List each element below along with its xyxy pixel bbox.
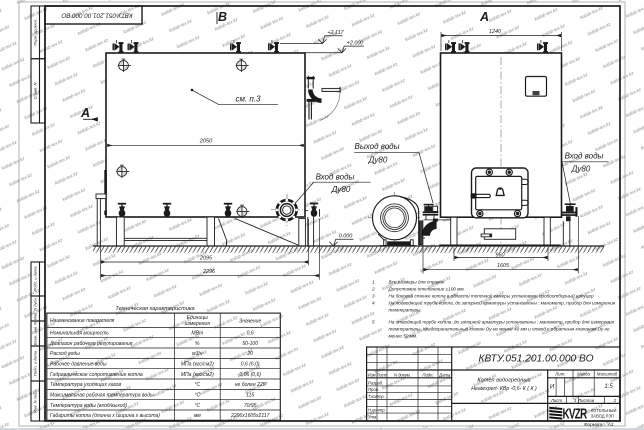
svg-text:Расход воды: Расход воды: [50, 351, 80, 357]
svg-text:На подводящей трубе котла, д: На подводящей трубе котла, до запорной а…: [389, 300, 616, 306]
svg-text:1: 1: [372, 280, 375, 285]
svg-text:Котел водогрейный: Котел водогрейный: [477, 376, 530, 383]
svg-text:Температура уходящих газов: Температура уходящих газов: [50, 382, 121, 388]
svg-text:Температура воды (вход/выход): Температура воды (вход/выход): [50, 403, 127, 409]
svg-text:Лит.: Лит.: [554, 371, 565, 376]
svg-text:На боковой стенке котла в обла: На боковой стенке котла в области топочн…: [389, 293, 595, 299]
svg-text:960: 960: [496, 252, 505, 258]
svg-text:Н.контр.: Н.контр.: [368, 408, 386, 413]
svg-text:Лист: Лист: [550, 398, 563, 403]
svg-text:Пров.: Пров.: [368, 387, 379, 392]
svg-text:50-100: 50-100: [242, 341, 258, 347]
svg-text:КВТУ.051.201.00.000 ВО: КВТУ.051.201.00.000 ВО: [61, 11, 132, 18]
svg-text:Формат: Формат: [584, 422, 602, 427]
svg-text:B: B: [218, 10, 227, 24]
svg-text:Наименование показателя: Наименование показателя: [50, 318, 115, 324]
svg-text:Масса: Масса: [577, 371, 591, 376]
svg-text:см. п.3: см. п.3: [235, 95, 261, 104]
svg-text:0,6 (6,0): 0,6 (6,0): [241, 362, 260, 368]
svg-text:Справ. N: Справ. N: [33, 83, 38, 100]
svg-text:мм: мм: [194, 413, 201, 419]
svg-text:4: 4: [372, 301, 375, 306]
svg-text:Габариты котла (длинна х ширин: Габариты котла (длинна х ширина х высота…: [50, 413, 160, 419]
svg-text:Heatexpert- КВр -0,6- К ( К ): Heatexpert- КВр -0,6- К ( К ): [471, 386, 537, 392]
svg-text:Ду80: Ду80: [571, 165, 591, 174]
svg-text:Допустимое отклонение ±100 мм: Допустимое отклонение ±100 мм.: [388, 287, 465, 292]
svg-text:KVZR: KVZR: [563, 406, 588, 422]
svg-text:1:5: 1:5: [604, 384, 613, 390]
svg-text:Номинальная мощность: Номинальная мощность: [50, 331, 109, 337]
svg-text:2: 2: [371, 287, 375, 292]
svg-text:°С: °С: [194, 382, 200, 388]
svg-text:Техническая характеристика: Техническая характеристика: [115, 306, 194, 312]
svg-text:Диапазон рабочего регулировани: Диапазон рабочего регулирования: [49, 341, 133, 347]
svg-text:1240: 1240: [489, 29, 501, 35]
svg-text:Подп. и дата: Подп. и дата: [33, 350, 38, 376]
svg-text:измерения: измерения: [185, 321, 211, 327]
svg-text:2: 2: [613, 398, 617, 403]
svg-text:+2.117: +2.117: [327, 30, 344, 36]
svg-text:Все размеры для справок: Все размеры для справок: [389, 280, 445, 285]
svg-text:2296х1605х2117: 2296х1605х2117: [230, 413, 270, 419]
svg-text:Ду80: Ду80: [368, 156, 388, 165]
svg-text:Инв. N подл.: Инв. N подл.: [33, 389, 38, 412]
svg-text:На отводящей трубе котла ,до з: На отводящей трубе котла ,до запорной ар…: [389, 319, 615, 325]
svg-text:МПа (кгс/см2): МПа (кгс/см2): [181, 362, 214, 368]
svg-text:2050: 2050: [199, 139, 213, 145]
svg-text:Листов: Листов: [577, 398, 595, 403]
svg-text:0,6: 0,6: [247, 331, 254, 337]
svg-text:КВТУ.051.201.00.000 ВО: КВТУ.051.201.00.000 ВО: [478, 353, 593, 364]
svg-text:Взам. инв. N: Взам. инв. N: [33, 322, 38, 345]
svg-text:м3/ч: м3/ч: [192, 351, 203, 357]
svg-text:3: 3: [372, 294, 375, 299]
svg-text:N докум.: N докум.: [394, 372, 411, 377]
svg-text:Масштаб: Масштаб: [597, 371, 618, 376]
svg-text:Гидравлическое сопротивление к: Гидравлическое сопротивление котла: [50, 372, 143, 378]
svg-text:%: %: [195, 341, 200, 347]
svg-text:115: 115: [246, 393, 254, 399]
svg-text:Инв. N дубл.: Инв. N дубл.: [33, 297, 38, 320]
svg-text:0,06 (0,6): 0,06 (0,6): [239, 372, 261, 378]
svg-text:2095: 2095: [199, 256, 213, 262]
svg-text:Утв.: Утв.: [368, 414, 378, 419]
svg-text:20: 20: [246, 351, 253, 357]
svg-text:А: А: [479, 10, 489, 24]
svg-text:Т.контр.: Т.контр.: [368, 394, 385, 399]
svg-text:А3: А3: [607, 422, 614, 427]
svg-text:1605: 1605: [497, 263, 510, 269]
svg-text:МПа (кгс/см2): МПа (кгс/см2): [181, 372, 214, 378]
svg-text:Ду80: Ду80: [331, 185, 351, 194]
svg-text:0.000: 0.000: [339, 234, 353, 240]
svg-text:Максимальная рабочая температу: Максимальная рабочая температура воды: [50, 393, 154, 399]
svg-text:МВт: МВт: [191, 331, 203, 337]
svg-text:Вход воды: Вход воды: [316, 173, 355, 182]
svg-text:Подп. и дата: Подп. и дата: [33, 266, 38, 292]
svg-text:70/95: 70/95: [244, 403, 257, 409]
svg-text:Перв. примен.: Перв. примен.: [33, 19, 38, 46]
svg-text:+2.000: +2.000: [347, 40, 364, 46]
svg-text:5: 5: [372, 320, 375, 325]
svg-text:Выход воды: Выход воды: [355, 142, 400, 151]
svg-text:Значение: Значение: [239, 319, 261, 325]
svg-text:°С: °С: [194, 393, 200, 399]
svg-text:Вход воды: Вход воды: [565, 152, 604, 161]
svg-text:температуры, предохранительный: температуры, предохранительный клапан Dу…: [389, 326, 611, 332]
svg-text:Рабочее давление воды: Рабочее давление воды: [50, 362, 107, 368]
svg-text:2296: 2296: [202, 269, 215, 275]
svg-text:не более 220: не более 220: [235, 382, 266, 388]
svg-text:менее 50 мм.: менее 50 мм.: [389, 334, 418, 339]
svg-text:ЗАВОД РЭП: ЗАВОД РЭП: [591, 413, 614, 418]
svg-text:Изм: Изм: [368, 372, 376, 377]
svg-text:Дата: Дата: [438, 372, 451, 377]
svg-text:Подп.: Подп.: [422, 372, 433, 377]
svg-text:°С: °С: [194, 403, 200, 409]
svg-text:Лист: Лист: [376, 372, 388, 377]
svg-text:температуры.: температуры.: [389, 308, 422, 313]
svg-text:Разраб.: Разраб.: [368, 380, 383, 385]
svg-text:И: И: [550, 385, 555, 391]
svg-text:А: А: [80, 106, 90, 120]
